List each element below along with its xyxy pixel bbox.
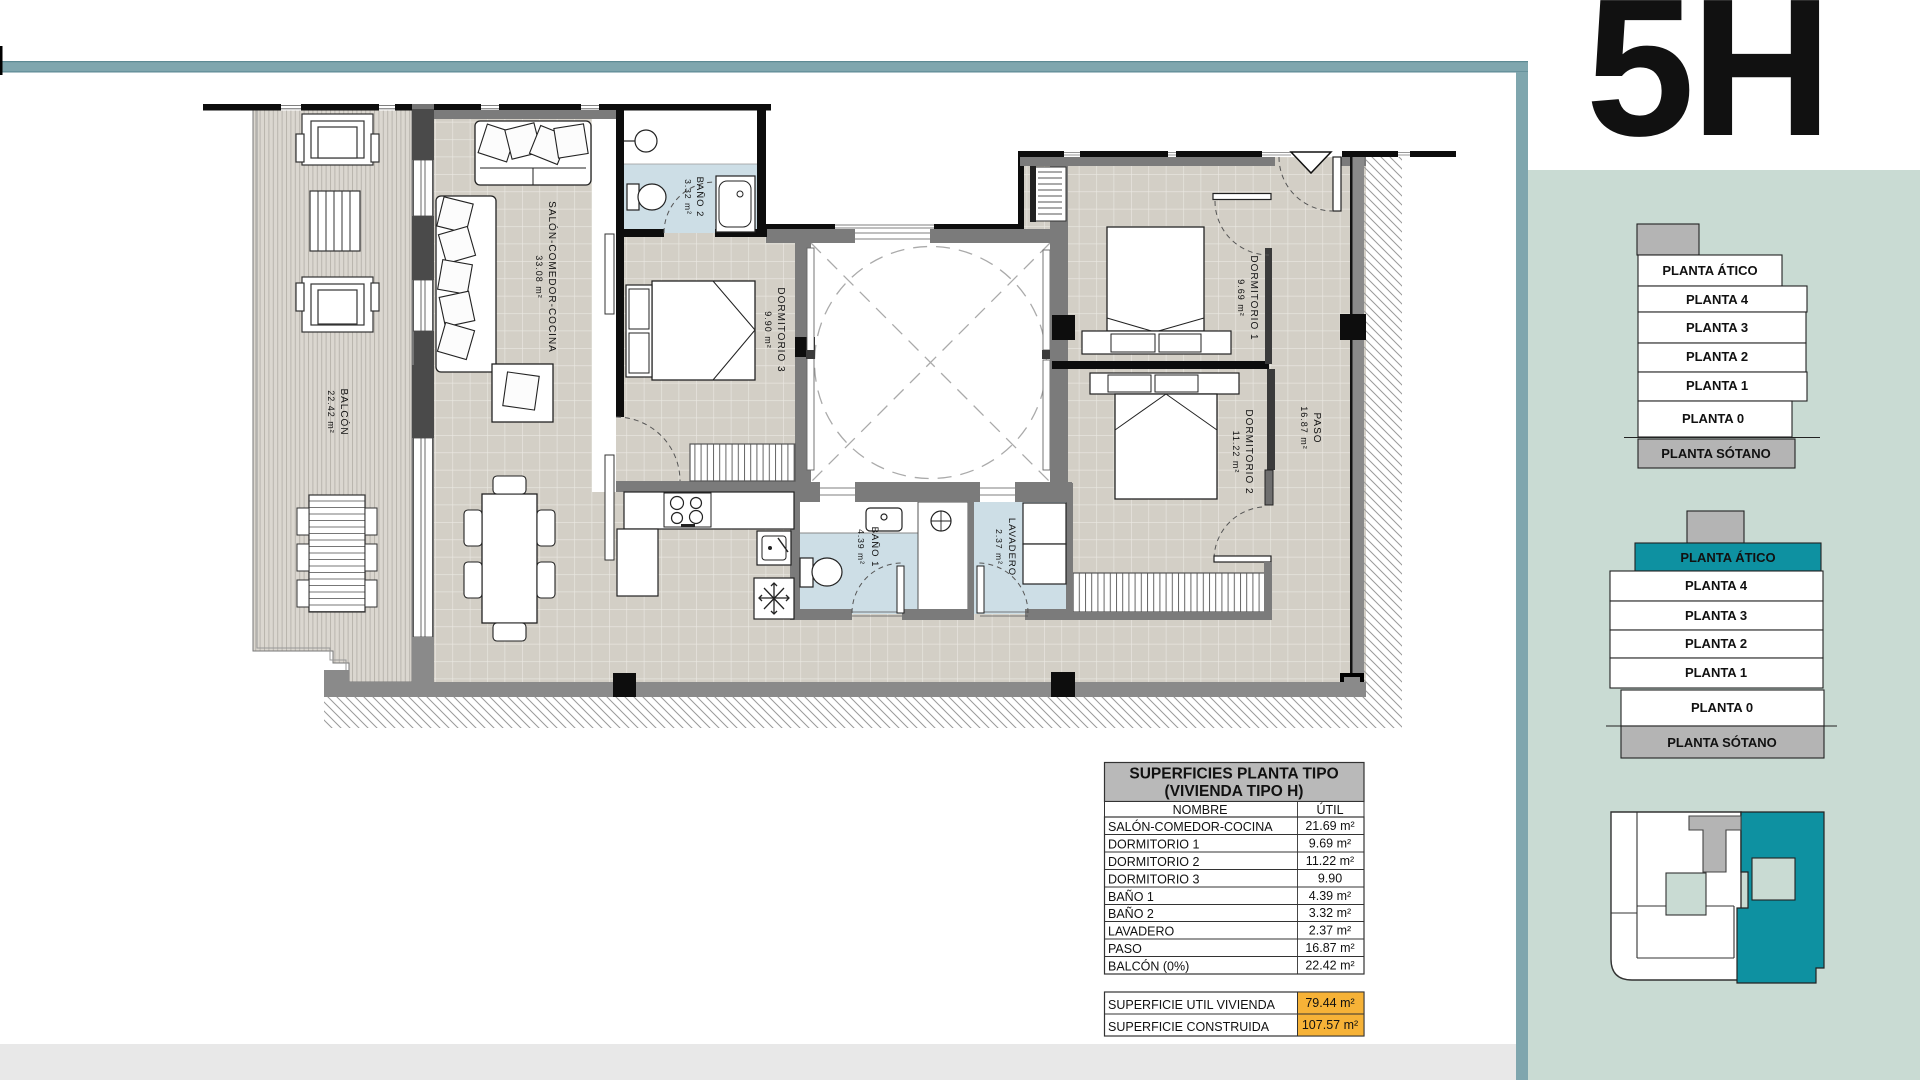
svg-text:9.90 m²: 9.90 m² — [763, 311, 773, 349]
svg-text:SALÓN-COMEDOR-COCINA: SALÓN-COMEDOR-COCINA — [1108, 819, 1273, 834]
svg-text:9.69 m²: 9.69 m² — [1309, 837, 1351, 851]
svg-text:DORMITORIO 3: DORMITORIO 3 — [775, 287, 786, 372]
svg-text:9.69 m²: 9.69 m² — [1236, 279, 1246, 317]
svg-text:NOMBRE: NOMBRE — [1173, 803, 1228, 817]
svg-text:4.39 m²: 4.39 m² — [856, 529, 866, 565]
svg-text:PASO: PASO — [1108, 942, 1142, 956]
svg-text:5H: 5H — [1586, 0, 1829, 177]
svg-text:9.90: 9.90 — [1318, 872, 1342, 886]
svg-text:3.32 m²: 3.32 m² — [683, 179, 693, 215]
svg-text:16.87 m²: 16.87 m² — [1305, 941, 1354, 955]
svg-text:PLANTA ÁTICO: PLANTA ÁTICO — [1662, 263, 1757, 278]
svg-text:SALÓN-COMEDOR-COCINA: SALÓN-COMEDOR-COCINA — [546, 201, 559, 353]
svg-text:2.37 m²: 2.37 m² — [994, 529, 1004, 565]
svg-text:4.39 m²: 4.39 m² — [1309, 889, 1351, 903]
svg-text:79.44 m²: 79.44 m² — [1305, 996, 1354, 1010]
svg-text:22.42 m²: 22.42 m² — [1305, 959, 1354, 973]
svg-text:BAÑO 2: BAÑO 2 — [694, 177, 705, 218]
svg-text:11.22 m²: 11.22 m² — [1306, 854, 1354, 868]
svg-text:DORMITORIO 2: DORMITORIO 2 — [1243, 409, 1254, 494]
svg-text:(VIVIENDA TIPO H): (VIVIENDA TIPO H) — [1165, 783, 1304, 800]
svg-text:2.37 m²: 2.37 m² — [1309, 924, 1351, 938]
svg-text:22.42 m²: 22.42 m² — [326, 390, 336, 434]
svg-text:33.08 m²: 33.08 m² — [534, 255, 544, 299]
svg-text:SUPERFICIE CONSTRUIDA: SUPERFICIE CONSTRUIDA — [1108, 1020, 1270, 1034]
svg-text:21.69 m²: 21.69 m² — [1305, 819, 1354, 833]
svg-text:PLANTA 1: PLANTA 1 — [1686, 378, 1748, 393]
svg-text:BAÑO 2: BAÑO 2 — [1108, 907, 1154, 921]
svg-text:PLANTA 4: PLANTA 4 — [1685, 578, 1748, 593]
svg-text:BAÑO 1: BAÑO 1 — [1108, 890, 1154, 904]
svg-text:PLANTA 3: PLANTA 3 — [1685, 608, 1747, 623]
svg-text:107.57 m²: 107.57 m² — [1302, 1018, 1358, 1032]
svg-text:16.87 m²: 16.87 m² — [1299, 406, 1309, 450]
svg-text:11.22 m²: 11.22 m² — [1231, 431, 1241, 474]
svg-text:DORMITORIO 1: DORMITORIO 1 — [1108, 838, 1199, 852]
svg-text:LAVADERO: LAVADERO — [1006, 518, 1017, 576]
svg-text:PLANTA 3: PLANTA 3 — [1686, 320, 1748, 335]
svg-text:SUPERFICIES PLANTA TIPO: SUPERFICIES PLANTA TIPO — [1129, 766, 1338, 783]
svg-text:DORMITORIO 3: DORMITORIO 3 — [1108, 873, 1199, 887]
svg-text:BAÑO 1: BAÑO 1 — [869, 527, 880, 568]
svg-text:3.32 m²: 3.32 m² — [1309, 906, 1351, 920]
svg-text:DORMITORIO 2: DORMITORIO 2 — [1108, 855, 1199, 869]
svg-text:PLANTA SÓTANO: PLANTA SÓTANO — [1667, 735, 1777, 750]
svg-text:DORMITORIO 1: DORMITORIO 1 — [1248, 255, 1259, 340]
svg-text:PLANTA ÁTICO: PLANTA ÁTICO — [1680, 550, 1775, 565]
svg-text:PLANTA SÓTANO: PLANTA SÓTANO — [1661, 446, 1771, 461]
svg-text:BALCÓN: BALCÓN — [338, 388, 351, 435]
svg-text:LAVADERO: LAVADERO — [1108, 925, 1175, 939]
svg-text:SUPERFICIE UTIL VIVIENDA: SUPERFICIE UTIL VIVIENDA — [1108, 998, 1276, 1012]
svg-text:PASO: PASO — [1311, 412, 1322, 443]
svg-text:PLANTA 1: PLANTA 1 — [1685, 665, 1747, 680]
svg-text:PLANTA 2: PLANTA 2 — [1685, 636, 1747, 651]
svg-text:ÚTIL: ÚTIL — [1316, 802, 1343, 817]
svg-text:PLANTA 4: PLANTA 4 — [1686, 292, 1749, 307]
svg-text:BALCÓN (0%): BALCÓN (0%) — [1108, 959, 1189, 974]
svg-text:PLANTA 0: PLANTA 0 — [1682, 411, 1744, 426]
svg-text:PLANTA 2: PLANTA 2 — [1686, 349, 1748, 364]
svg-text:PLANTA 0: PLANTA 0 — [1691, 700, 1753, 715]
